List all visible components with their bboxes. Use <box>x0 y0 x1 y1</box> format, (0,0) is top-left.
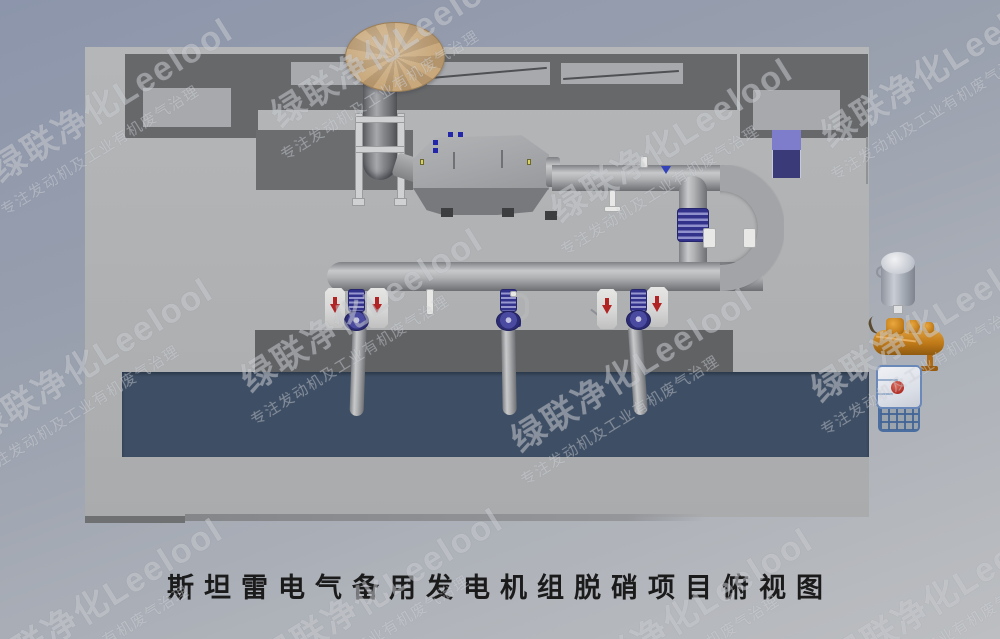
scr-panel-seam <box>453 152 455 169</box>
pipe-support <box>743 228 756 248</box>
stack-frame-crossbar <box>355 146 405 153</box>
scr-tag <box>527 159 531 165</box>
stack-frame-crossbar <box>355 116 405 123</box>
scr-reactor-lower-face <box>413 188 549 215</box>
pipe-support-base <box>604 206 621 212</box>
expansion-joint <box>348 289 365 312</box>
compressor-filter <box>922 322 934 333</box>
compressor-pump-head <box>906 320 920 333</box>
air-compressor <box>873 330 944 355</box>
tank-nozzle <box>893 305 903 314</box>
ibc-seam <box>878 393 893 395</box>
platform-bottom-edge <box>85 516 185 523</box>
water-pool <box>122 372 869 457</box>
scr-foot <box>502 208 514 217</box>
scr-marker-dot <box>433 148 438 153</box>
down-arrow-icon <box>330 297 340 314</box>
down-arrow-icon <box>652 296 662 313</box>
air-receiver-tank-dome <box>881 252 915 274</box>
branch-pipe-2 <box>501 329 516 415</box>
stack-frame-rail <box>355 113 363 206</box>
scr-foot <box>441 208 453 217</box>
platform-bottom-edge <box>185 514 705 521</box>
exhaust-header-pipe <box>327 262 763 291</box>
pipe-support <box>703 228 716 248</box>
floor-recess-band <box>255 330 733 372</box>
butterfly-valve <box>496 311 521 331</box>
scr-tag <box>420 159 424 165</box>
stack-frame-foot <box>394 198 407 206</box>
roof-opening-right <box>753 90 840 130</box>
flow-direction-icon <box>661 166 671 174</box>
flange <box>510 291 517 297</box>
down-arrow-icon <box>372 297 382 314</box>
scr-marker-dot <box>458 132 463 137</box>
scr-panel-seam <box>501 150 503 168</box>
ibc-tote-cage <box>878 405 920 432</box>
pipe-support-post <box>426 289 434 315</box>
butterfly-valve <box>344 311 369 331</box>
expansion-joint <box>630 289 647 312</box>
roof-opening-left <box>143 88 231 127</box>
scr-marker-dot <box>433 140 438 145</box>
down-arrow-icon <box>602 298 612 315</box>
pipe-clamp <box>640 156 648 168</box>
butterfly-valve <box>626 310 651 330</box>
platform-right-edge <box>866 137 868 184</box>
drawing-title: 斯坦雷电气备用发电机组脱硝项目俯视图 <box>0 566 1000 605</box>
ibc-red-cap <box>891 381 904 394</box>
control-cabinet-top <box>772 130 801 150</box>
compressor-motor <box>886 318 904 334</box>
stack-frame-foot <box>352 198 365 206</box>
scr-foot <box>545 211 557 220</box>
cad-top-view-rendering: 斯坦雷电气备用发电机组脱硝项目俯视图 绿联净化Leelool专注发动机及工业有机… <box>0 0 1000 639</box>
scr-marker-dot <box>448 132 453 137</box>
stack-rain-cap <box>345 22 445 92</box>
compressor-foot-base <box>920 366 938 371</box>
control-cabinet <box>772 150 801 178</box>
